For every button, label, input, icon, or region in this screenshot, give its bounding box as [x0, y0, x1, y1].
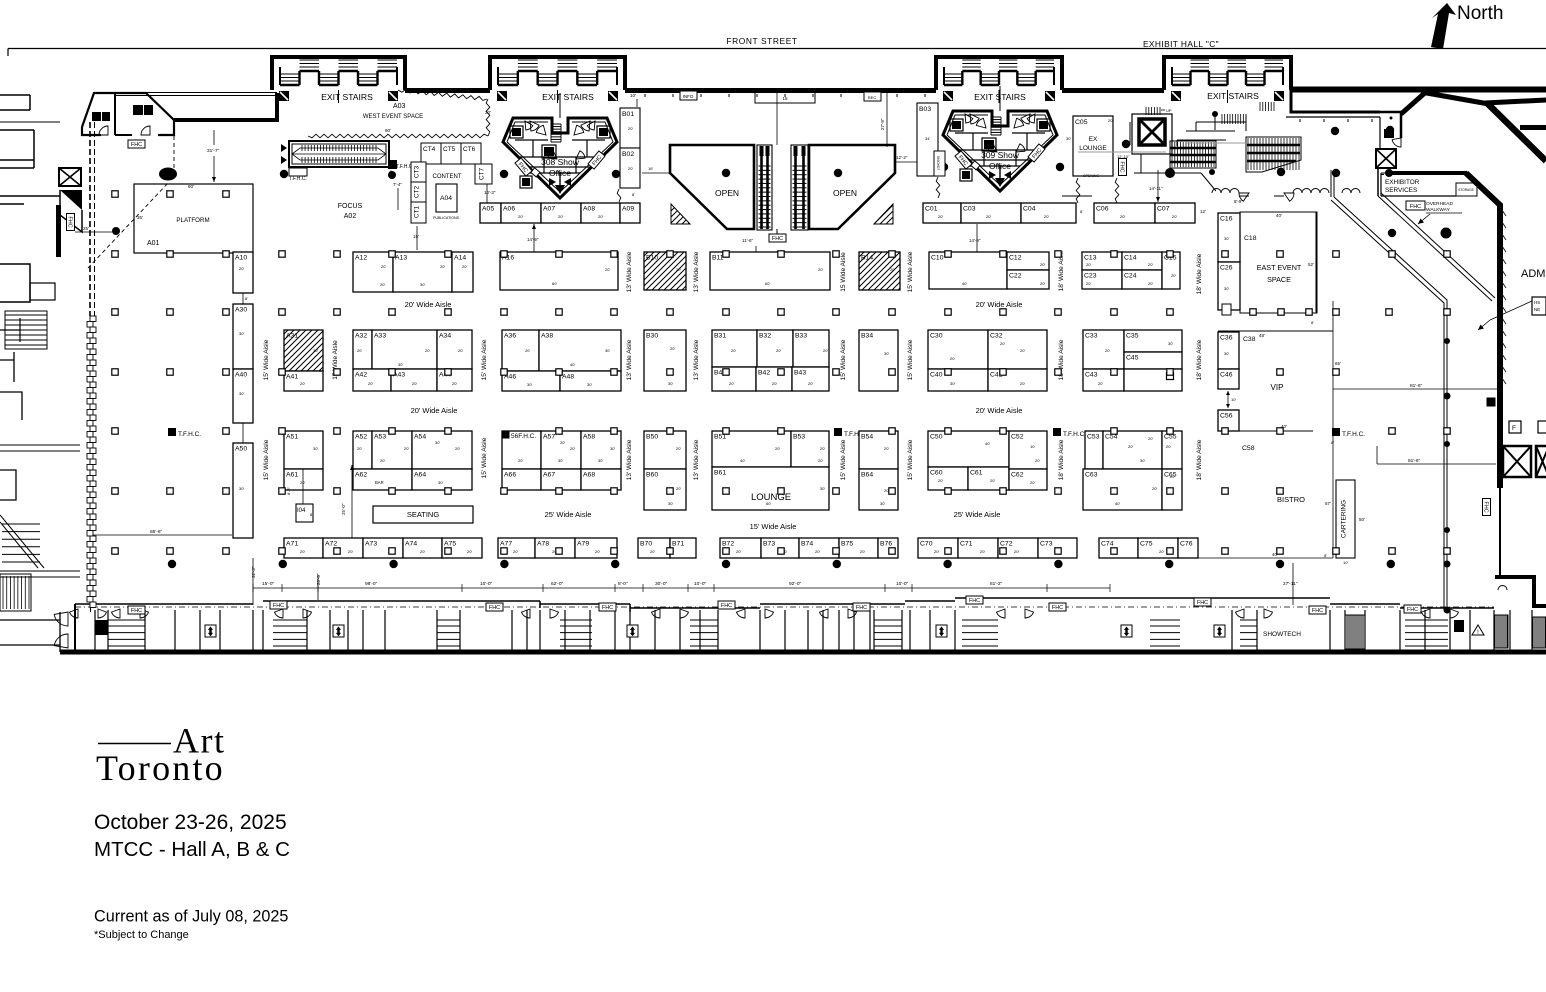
- svg-text:40': 40': [962, 281, 967, 286]
- svg-text:A41: A41: [286, 374, 298, 381]
- svg-text:B60: B60: [646, 472, 658, 479]
- svg-text:A66: A66: [504, 472, 516, 479]
- svg-text:20': 20': [485, 110, 491, 115]
- svg-text:60': 60': [188, 184, 194, 189]
- svg-text:86'-6": 86'-6": [150, 529, 163, 535]
- svg-text:8': 8': [245, 296, 248, 301]
- svg-text:C10: C10: [931, 255, 944, 262]
- svg-text:18' Wide Aisle: 18' Wide Aisle: [1196, 339, 1203, 380]
- svg-text:25': 25': [83, 226, 89, 231]
- svg-text:A52: A52: [355, 434, 367, 441]
- svg-text:Office: Office: [549, 168, 571, 178]
- svg-text:20': 20': [462, 264, 467, 269]
- svg-text:FRONT STREET: FRONT STREET: [726, 36, 797, 46]
- svg-text:B54: B54: [861, 434, 873, 441]
- svg-text:A09: A09: [622, 206, 634, 213]
- svg-text:8'-9": 8'-9": [1234, 199, 1243, 204]
- svg-text:EXHIBITOR: EXHIBITOR: [1385, 179, 1420, 186]
- svg-text:FHC: FHC: [969, 598, 980, 604]
- svg-text:20': 20': [605, 267, 610, 272]
- svg-text:EX: EX: [1089, 136, 1098, 143]
- svg-text:INFO: INFO: [683, 94, 694, 99]
- svg-text:B14: B14: [861, 255, 873, 262]
- svg-text:OPEN: OPEN: [833, 188, 857, 198]
- svg-text:25' Wide Aisle: 25' Wide Aisle: [954, 510, 1001, 519]
- svg-text:A64: A64: [414, 472, 426, 479]
- svg-text:A71: A71: [286, 541, 298, 548]
- svg-text:20': 20': [1148, 262, 1153, 267]
- svg-text:20': 20': [467, 549, 472, 554]
- svg-text:20': 20': [455, 446, 460, 451]
- svg-text:B76: B76: [880, 541, 892, 548]
- svg-text:309 Show: 309 Show: [981, 150, 1020, 160]
- svg-text:13' Wide Aisle: 13' Wide Aisle: [693, 251, 700, 292]
- svg-text:81'-6": 81'-6": [1408, 458, 1421, 464]
- svg-text:65': 65': [1335, 361, 1341, 366]
- svg-text:20': 20': [772, 381, 777, 386]
- svg-text:20' Wide Aisle: 20' Wide Aisle: [976, 300, 1023, 309]
- svg-text:20': 20': [1159, 549, 1164, 554]
- svg-text:20': 20': [239, 266, 244, 271]
- svg-text:REC: REC: [868, 95, 877, 100]
- svg-text:B42: B42: [758, 370, 770, 377]
- svg-text:10': 10': [1231, 397, 1236, 402]
- svg-text:20': 20': [452, 381, 457, 386]
- svg-text:10'-0": 10'-0": [896, 581, 909, 587]
- svg-text:8': 8': [1311, 320, 1314, 325]
- svg-text:20': 20': [1172, 214, 1177, 219]
- svg-text:30': 30': [239, 391, 244, 396]
- svg-text:20': 20': [1171, 273, 1176, 278]
- svg-text:30': 30': [239, 486, 244, 491]
- svg-text:30': 30': [1224, 351, 1229, 356]
- svg-text:A38: A38: [541, 333, 553, 340]
- svg-text:BAR: BAR: [375, 480, 384, 485]
- svg-text:20': 20': [525, 348, 530, 353]
- svg-text:20': 20': [1044, 214, 1049, 219]
- svg-text:FHC: FHC: [1312, 608, 1323, 614]
- svg-text:A05: A05: [482, 206, 494, 213]
- svg-text:92'-0": 92'-0": [789, 581, 802, 587]
- svg-text:56F.H.C.: 56F.H.C.: [511, 433, 536, 440]
- svg-text:ADM: ADM: [1521, 268, 1545, 280]
- svg-text:20': 20': [860, 549, 865, 554]
- svg-text:FHC: FHC: [1482, 501, 1488, 512]
- svg-text:27'-11": 27'-11": [1283, 581, 1298, 587]
- svg-text:C43: C43: [1085, 372, 1098, 379]
- svg-text:20': 20': [1098, 381, 1103, 386]
- svg-text:30': 30': [950, 381, 955, 386]
- svg-text:B11: B11: [712, 255, 724, 262]
- svg-text:20': 20': [1086, 281, 1091, 286]
- svg-text:C32: C32: [990, 333, 1003, 340]
- svg-text:Toronto: Toronto: [96, 748, 225, 788]
- svg-text:15' Wide Aisle: 15' Wide Aisle: [750, 522, 797, 531]
- svg-text:LOADING: LOADING: [937, 155, 941, 170]
- svg-text:WEST EVENT SPACE: WEST EVENT SPACE: [363, 114, 423, 120]
- svg-text:20': 20': [1086, 262, 1091, 267]
- svg-text:C36: C36: [1220, 335, 1233, 342]
- svg-text:EXHIBIT HALL "C": EXHIBIT HALL "C": [1143, 39, 1219, 49]
- svg-text:40': 40': [740, 458, 745, 463]
- svg-text:20': 20': [404, 446, 409, 451]
- svg-text:30': 30': [610, 446, 615, 451]
- svg-text:18' Wide Aisle: 18' Wide Aisle: [1196, 253, 1203, 294]
- svg-text:A12: A12: [355, 255, 367, 262]
- svg-text:FHC: FHC: [66, 216, 72, 227]
- svg-text:A04: A04: [440, 195, 452, 202]
- svg-text:C18: C18: [1244, 235, 1257, 242]
- svg-text:40': 40': [1115, 501, 1120, 506]
- svg-text:20' Wide Aisle: 20' Wide Aisle: [976, 406, 1023, 415]
- svg-text:15' Wide Aisle: 15' Wide Aisle: [907, 339, 914, 380]
- svg-text:C53: C53: [1087, 434, 1100, 441]
- svg-text:34': 34': [925, 136, 930, 141]
- svg-text:20': 20': [628, 126, 633, 131]
- svg-text:*Subject to Change: *Subject to Change: [94, 929, 189, 941]
- svg-text:C40: C40: [930, 372, 943, 379]
- svg-text:20': 20': [808, 381, 813, 386]
- svg-text:30': 30': [1224, 236, 1229, 241]
- svg-text:13' Wide Aisle: 13' Wide Aisle: [626, 251, 633, 292]
- svg-text:20': 20': [986, 214, 991, 219]
- svg-text:CT5: CT5: [443, 146, 456, 153]
- svg-text:30': 30': [605, 348, 610, 353]
- svg-text:14'-11": 14'-11": [1149, 186, 1163, 191]
- svg-text:30': 30': [420, 282, 425, 287]
- svg-text:30': 30': [668, 381, 673, 386]
- svg-text:North: North: [1457, 3, 1503, 24]
- svg-text:20': 20': [950, 356, 955, 361]
- svg-text:4': 4': [389, 169, 392, 174]
- svg-text:25' Wide Aisle: 25' Wide Aisle: [545, 510, 592, 519]
- svg-text:B10: B10: [646, 255, 658, 262]
- svg-text:OPEN: OPEN: [715, 188, 739, 198]
- svg-text:EAST EVENT: EAST EVENT: [1257, 263, 1302, 272]
- svg-text:35': 35': [137, 215, 143, 220]
- svg-text:C23: C23: [1084, 273, 1097, 280]
- svg-text:11'-6": 11'-6": [742, 238, 754, 243]
- svg-text:20': 20': [676, 267, 681, 272]
- svg-text:20': 20': [938, 214, 943, 219]
- svg-text:20': 20': [1120, 214, 1125, 219]
- svg-text:C63: C63: [1085, 472, 1098, 479]
- svg-text:8': 8': [1331, 440, 1334, 445]
- svg-text:B53: B53: [793, 434, 805, 441]
- svg-text:C38: C38: [1243, 336, 1256, 343]
- svg-text:C35: C35: [1126, 333, 1139, 340]
- svg-text:20': 20': [1105, 348, 1110, 353]
- svg-text:13' Wide Aisle: 13' Wide Aisle: [693, 439, 700, 480]
- svg-text:20': 20': [628, 166, 633, 171]
- svg-text:20': 20': [458, 348, 463, 353]
- svg-text:HS: HS: [1534, 300, 1540, 305]
- svg-text:20': 20': [980, 549, 985, 554]
- svg-text:A77: A77: [500, 541, 512, 548]
- svg-text:B31: B31: [714, 333, 726, 340]
- svg-text:27'-8": 27'-8": [880, 118, 885, 130]
- svg-text:B64: B64: [861, 472, 873, 479]
- svg-text:25'-5": 25'-5": [316, 573, 321, 585]
- svg-text:A58: A58: [583, 434, 595, 441]
- svg-text:CT3: CT3: [414, 165, 421, 178]
- svg-text:WALKWAY: WALKWAY: [1426, 207, 1451, 213]
- svg-text:30': 30': [558, 458, 563, 463]
- svg-text:15' Wide Aisle: 15' Wide Aisle: [907, 439, 914, 480]
- svg-text:B70: B70: [640, 541, 652, 548]
- svg-text:20': 20': [380, 282, 385, 287]
- svg-text:20': 20': [676, 446, 681, 451]
- svg-text:30': 30': [598, 458, 603, 463]
- svg-text:T.F.H.C.: T.F.H.C.: [289, 176, 307, 182]
- svg-text:PUBLICATIONS: PUBLICATIONS: [433, 216, 460, 220]
- svg-text:30': 30': [313, 348, 318, 353]
- svg-text:C72: C72: [1000, 541, 1013, 548]
- svg-text:Current as of July 08, 2025: Current as of July 08, 2025: [94, 908, 288, 926]
- svg-text:30': 30': [1140, 458, 1145, 463]
- svg-text:20': 20': [558, 214, 563, 219]
- svg-text:A53: A53: [374, 434, 386, 441]
- svg-text:A61: A61: [286, 472, 298, 479]
- svg-text:20': 20': [729, 381, 734, 386]
- svg-text:EXIT STAIRS: EXIT STAIRS: [321, 92, 373, 102]
- svg-text:10': 10': [1030, 444, 1035, 449]
- svg-text:B33: B33: [795, 333, 807, 340]
- svg-text:C07: C07: [1157, 206, 1170, 213]
- svg-text:C74: C74: [1101, 541, 1114, 548]
- svg-text:B71: B71: [672, 541, 684, 548]
- svg-text:20': 20': [1152, 486, 1157, 491]
- svg-text:30': 30': [884, 351, 889, 356]
- svg-text:B02: B02: [622, 151, 634, 158]
- svg-text:A48: A48: [562, 374, 574, 381]
- svg-text:FHC: FHC: [131, 142, 142, 148]
- svg-text:20': 20': [1170, 474, 1175, 479]
- svg-text:13' Wide Aisle: 13' Wide Aisle: [626, 439, 633, 480]
- svg-text:EXIT STAIRS: EXIT STAIRS: [542, 92, 594, 102]
- svg-text:A40: A40: [235, 372, 247, 379]
- svg-text:C76: C76: [1180, 541, 1193, 548]
- svg-text:20': 20': [736, 549, 741, 554]
- svg-text:20' Wide Aisle: 20' Wide Aisle: [405, 300, 452, 309]
- svg-text:FHC: FHC: [1407, 607, 1418, 613]
- svg-text:FOCUS: FOCUS: [338, 203, 363, 210]
- svg-text:A57: A57: [543, 434, 555, 441]
- svg-text:OPENING: OPENING: [1083, 174, 1099, 178]
- svg-text:SEATING: SEATING: [407, 510, 440, 519]
- svg-text:A75: A75: [444, 541, 456, 548]
- svg-text:B61: B61: [714, 470, 726, 477]
- svg-text:A32: A32: [355, 333, 367, 340]
- svg-text:20': 20': [884, 446, 889, 451]
- svg-text:40': 40': [570, 362, 575, 367]
- svg-text:20': 20': [776, 348, 781, 353]
- svg-text:20': 20': [368, 381, 373, 386]
- svg-text:15' Wide Aisle: 15' Wide Aisle: [840, 439, 847, 480]
- svg-text:16': 16': [648, 166, 653, 171]
- svg-text:SERVICES: SERVICES: [1385, 187, 1417, 194]
- svg-text:57': 57': [1325, 501, 1331, 506]
- svg-text:20': 20': [518, 214, 523, 219]
- svg-text:A13: A13: [395, 255, 407, 262]
- svg-text:C56: C56: [1220, 413, 1233, 420]
- svg-text:20': 20': [357, 446, 362, 451]
- svg-text:20': 20': [440, 264, 445, 269]
- svg-text:A36: A36: [504, 333, 516, 340]
- svg-text:20': 20': [934, 549, 939, 554]
- svg-text:C01: C01: [925, 206, 938, 213]
- svg-text:B50: B50: [646, 434, 658, 441]
- svg-text:VIP: VIP: [1271, 383, 1284, 392]
- svg-text:SPACE: SPACE: [1267, 275, 1291, 284]
- svg-text:A03: A03: [393, 103, 406, 110]
- svg-text:81'-2": 81'-2": [990, 581, 1003, 587]
- svg-text:20': 20': [1020, 381, 1025, 386]
- svg-text:C30: C30: [930, 333, 943, 340]
- svg-text:20': 20': [650, 549, 655, 554]
- svg-text:12'-2": 12'-2": [896, 155, 908, 160]
- svg-text:C05: C05: [1075, 119, 1088, 126]
- svg-text:A06: A06: [503, 206, 515, 213]
- svg-text:C58: C58: [1242, 445, 1255, 452]
- svg-text:B75: B75: [841, 541, 853, 548]
- svg-text:OVERHEAD: OVERHEAD: [1426, 201, 1453, 207]
- svg-text:A68: A68: [583, 472, 595, 479]
- svg-text:A74: A74: [405, 541, 417, 548]
- svg-text:8'-6": 8'-6": [286, 486, 291, 495]
- svg-text:A08: A08: [583, 206, 595, 213]
- svg-text:LOUNGE: LOUNGE: [1079, 145, 1107, 152]
- svg-text:C75: C75: [1140, 541, 1153, 548]
- svg-text:30': 30': [1224, 286, 1229, 291]
- svg-text:20': 20': [570, 446, 575, 451]
- svg-text:C12: C12: [1009, 255, 1022, 262]
- svg-text:15' Wide Aisle: 15' Wide Aisle: [840, 339, 847, 380]
- svg-text:81'-6": 81'-6": [1410, 383, 1423, 389]
- svg-text:A07: A07: [543, 206, 555, 213]
- svg-text:10': 10': [1343, 560, 1348, 565]
- svg-text:20': 20': [775, 446, 780, 451]
- svg-text:15': 15': [413, 234, 419, 239]
- svg-text:C52: C52: [1011, 434, 1024, 441]
- svg-text:30': 30': [587, 382, 592, 387]
- svg-text:48': 48': [1259, 333, 1265, 338]
- svg-text:25'-0": 25'-0": [341, 503, 346, 515]
- svg-text:10'-3": 10'-3": [484, 190, 496, 195]
- svg-text:15' Wide Aisle: 15' Wide Aisle: [481, 339, 488, 380]
- svg-text:31'-7": 31'-7": [207, 148, 220, 154]
- svg-text:15' Wide Aisle: 15' Wide Aisle: [263, 339, 270, 380]
- svg-text:A10: A10: [235, 255, 247, 262]
- svg-text:60': 60': [765, 281, 770, 286]
- svg-text:B73: B73: [763, 541, 775, 548]
- svg-text:20': 20': [670, 346, 675, 351]
- svg-text:T.F.H.C.: T.F.H.C.: [1063, 431, 1086, 438]
- svg-text:8': 8': [632, 192, 635, 197]
- svg-text:FHC: FHC: [1052, 605, 1063, 611]
- svg-text:A01: A01: [147, 240, 160, 247]
- svg-text:30': 30': [435, 440, 440, 445]
- svg-text:A54: A54: [414, 434, 426, 441]
- svg-text:20': 20': [676, 486, 681, 491]
- svg-text:13' Wide Aisle: 13' Wide Aisle: [626, 339, 633, 380]
- svg-text:20': 20': [518, 458, 523, 463]
- svg-text:15'-0": 15'-0": [262, 581, 275, 587]
- svg-text:15' Wide Aisle: 15' Wide Aisle: [907, 251, 914, 292]
- svg-text:30': 30': [668, 501, 673, 506]
- svg-text:20': 20': [990, 478, 995, 483]
- svg-text:20': 20': [595, 549, 600, 554]
- svg-text:14'-9": 14'-9": [969, 238, 981, 243]
- svg-text:B74: B74: [801, 541, 813, 548]
- svg-text:20': 20': [381, 264, 386, 269]
- svg-text:20': 20': [300, 381, 305, 386]
- svg-text:FHC: FHC: [131, 608, 142, 614]
- svg-text:8': 8': [1080, 209, 1083, 214]
- svg-text:C46: C46: [1220, 372, 1233, 379]
- svg-text:C06: C06: [1096, 206, 1109, 213]
- svg-text:FHC: FHC: [1118, 161, 1124, 172]
- svg-text:A33: A33: [374, 333, 386, 340]
- svg-text:I04: I04: [297, 508, 306, 514]
- svg-text:FHC: FHC: [856, 605, 867, 611]
- svg-text:50': 50': [1359, 517, 1365, 522]
- svg-text:A31: A31: [286, 333, 298, 340]
- svg-text:30': 30': [398, 362, 403, 367]
- svg-text:30': 30': [820, 486, 825, 491]
- svg-text:A02: A02: [344, 213, 357, 220]
- svg-text:C24: C24: [1124, 273, 1137, 280]
- svg-text:B34: B34: [861, 333, 873, 340]
- svg-text:20': 20': [420, 549, 425, 554]
- svg-text:15' Wide Aisle: 15' Wide Aisle: [263, 439, 270, 480]
- svg-text:C14: C14: [1124, 255, 1137, 262]
- svg-text:T.F.H.C.: T.F.H.C.: [1342, 431, 1365, 438]
- svg-text:STORAGE: STORAGE: [1458, 188, 1474, 192]
- svg-text:20': 20': [300, 549, 305, 554]
- svg-text:C61: C61: [970, 470, 983, 477]
- svg-text:10'-0": 10'-0": [480, 581, 493, 587]
- svg-text:10': 10': [630, 93, 636, 98]
- svg-text:C33: C33: [1085, 333, 1098, 340]
- svg-text:30': 30': [1168, 341, 1173, 346]
- svg-text:20': 20': [425, 348, 430, 353]
- svg-text:98'-0": 98'-0": [365, 581, 378, 587]
- svg-text:20': 20': [1040, 262, 1045, 267]
- svg-text:T.F.H.C.: T.F.H.C.: [178, 431, 201, 438]
- svg-text:62'-0": 62'-0": [551, 581, 564, 587]
- svg-text:CT1: CT1: [414, 205, 421, 218]
- svg-text:20': 20': [815, 549, 820, 554]
- svg-text:13' Wide Aisle: 13' Wide Aisle: [693, 339, 700, 380]
- svg-text:A51: A51: [286, 434, 298, 441]
- svg-text:20': 20': [348, 549, 353, 554]
- svg-text:20': 20': [818, 267, 823, 272]
- svg-text:20' Wide Aisle: 20' Wide Aisle: [411, 406, 458, 415]
- svg-text:PLATFORM: PLATFORM: [176, 217, 209, 224]
- svg-text:32'-3": 32'-3": [251, 566, 256, 578]
- svg-text:FHC: FHC: [489, 605, 500, 611]
- svg-text:14'-9": 14'-9": [527, 237, 539, 242]
- svg-text:20': 20': [598, 214, 603, 219]
- svg-text:B01: B01: [622, 111, 634, 118]
- svg-text:20': 20': [357, 348, 362, 353]
- svg-text:A67: A67: [543, 472, 555, 479]
- svg-text:C73: C73: [1040, 541, 1053, 548]
- svg-text:20': 20': [890, 267, 895, 272]
- svg-text:52': 52': [1308, 262, 1314, 267]
- svg-text:A79: A79: [577, 541, 589, 548]
